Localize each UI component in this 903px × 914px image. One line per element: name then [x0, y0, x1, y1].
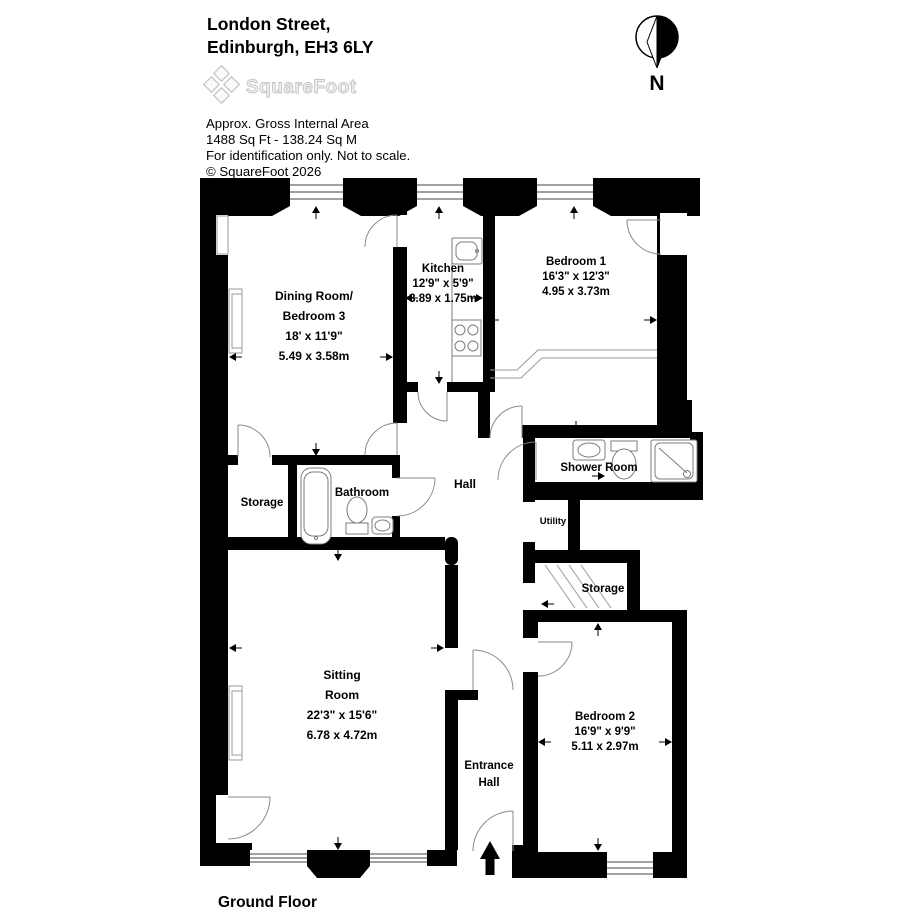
area-title: Approx. Gross Internal Area — [206, 116, 369, 131]
window-glazing-top — [290, 185, 593, 199]
bedroom2-metric: 5.11 x 2.97m — [571, 741, 638, 753]
toilet-icon — [346, 497, 368, 534]
room-label-dining: Dining Room/ Bedroom 3 18' x 11'9" 5.49 … — [275, 289, 354, 363]
shower-room-label: Shower Room — [560, 462, 637, 474]
room-label-entrance: Entrance Hall — [464, 760, 513, 789]
shower-basin-icon — [573, 440, 605, 460]
floor-label: Ground Floor — [218, 894, 317, 911]
bedroom1-name: Bedroom 1 — [546, 256, 607, 268]
floor-plan-svg: London Street, Edinburgh, EH3 6LY Square… — [0, 0, 903, 914]
sitting-imperial: 22'3" x 15'6" — [307, 708, 377, 722]
room-label-sitting: Sitting Room 22'3" x 15'6" 6.78 x 4.72m — [307, 668, 378, 742]
header-block: London Street, Edinburgh, EH3 6LY Square… — [204, 14, 411, 179]
sitting-name-1: Sitting — [323, 668, 360, 682]
entrance-arrow-icon — [480, 841, 500, 875]
bathroom-label: Bathroom — [335, 487, 389, 499]
hall-label: Hall — [454, 477, 476, 491]
sitting-metric: 6.78 x 4.72m — [307, 728, 378, 742]
kitchen-imperial: 12'9" x 5'9" — [412, 278, 473, 290]
room-label-bedroom2: Bedroom 2 16'9" x 9'9" 5.11 x 2.97m — [571, 711, 638, 753]
area-value: 1488 Sq Ft - 138.24 Sq M — [206, 132, 357, 147]
storage1-label: Storage — [241, 497, 284, 509]
floorplan-page: London Street, Edinburgh, EH3 6LY Square… — [0, 0, 903, 914]
bedroom2-imperial: 16'9" x 9'9" — [574, 726, 635, 738]
north-label: N — [649, 72, 664, 95]
bedroom1-metric: 4.95 x 3.73m — [542, 286, 610, 298]
utility-label: Utility — [540, 516, 567, 527]
storage2-label: Storage — [582, 583, 625, 595]
squarefoot-logo-text: SquareFoot — [246, 77, 357, 98]
fitted-unit-sitting — [229, 686, 242, 760]
kitchen-name: Kitchen — [422, 263, 464, 275]
bedroom1-step-lines — [490, 350, 657, 378]
dining-imperial: 18' x 11'9" — [285, 329, 342, 343]
fitted-unit-dining — [229, 289, 242, 353]
north-arrow-icon: N — [636, 16, 678, 95]
squarefoot-logo: SquareFoot — [204, 66, 357, 104]
room-label-kitchen: Kitchen 12'9" x 5'9" 3.89 x 1.75m — [409, 263, 477, 305]
basin-icon — [372, 517, 393, 534]
squarefoot-logo-icon — [204, 66, 240, 104]
dining-metric: 5.49 x 3.58m — [279, 349, 350, 363]
dining-name-2: Bedroom 3 — [283, 309, 346, 323]
dining-name-1: Dining Room/ — [275, 289, 354, 303]
room-label-bedroom1: Bedroom 1 16'3" x 12'3" 4.95 x 3.73m — [542, 256, 610, 298]
address-line2: Edinburgh, EH3 6LY — [207, 37, 374, 57]
shower-tray-icon — [651, 440, 697, 482]
disclaimer: For identification only. Not to scale. — [206, 148, 410, 163]
entrance-name-1: Entrance — [464, 760, 513, 772]
entrance-name-2: Hall — [478, 777, 499, 789]
bedroom2-name: Bedroom 2 — [575, 711, 635, 723]
copyright: © SquareFoot 2026 — [206, 164, 321, 179]
kitchen-sink-icon — [452, 238, 482, 264]
kitchen-metric: 3.89 x 1.75m — [409, 293, 477, 305]
sitting-name-2: Room — [325, 688, 359, 702]
bedroom1-imperial: 16'3" x 12'3" — [542, 271, 610, 283]
bathtub-icon — [301, 468, 331, 544]
hob-icon — [452, 320, 481, 356]
address-line1: London Street, — [207, 14, 330, 34]
